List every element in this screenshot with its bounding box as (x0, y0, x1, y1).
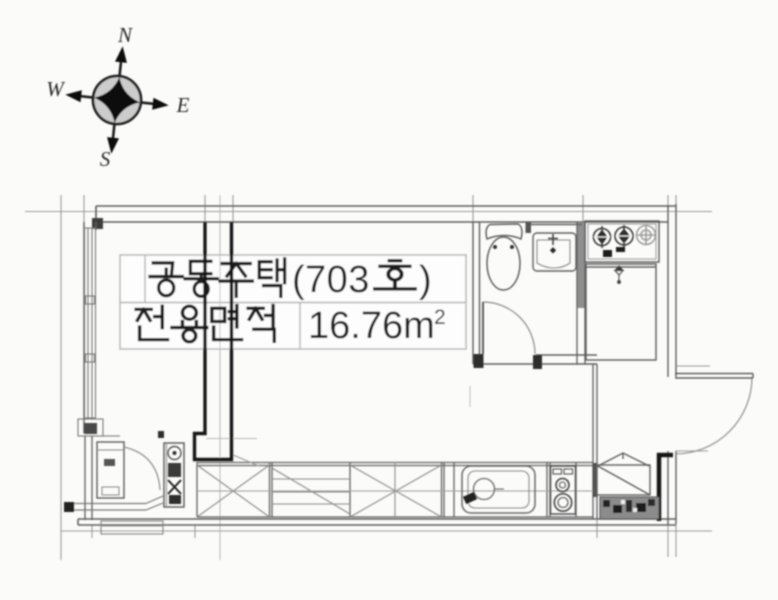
svg-text:(: ( (292, 259, 305, 301)
svg-text:E: E (176, 93, 190, 117)
svg-text:N: N (117, 23, 133, 47)
svg-text:W: W (46, 77, 66, 101)
svg-text:16.76m: 16.76m (308, 305, 435, 347)
svg-text:): ) (419, 259, 432, 301)
svg-text:703: 703 (305, 259, 370, 301)
svg-text:S: S (100, 147, 111, 171)
svg-text:2: 2 (434, 306, 446, 329)
